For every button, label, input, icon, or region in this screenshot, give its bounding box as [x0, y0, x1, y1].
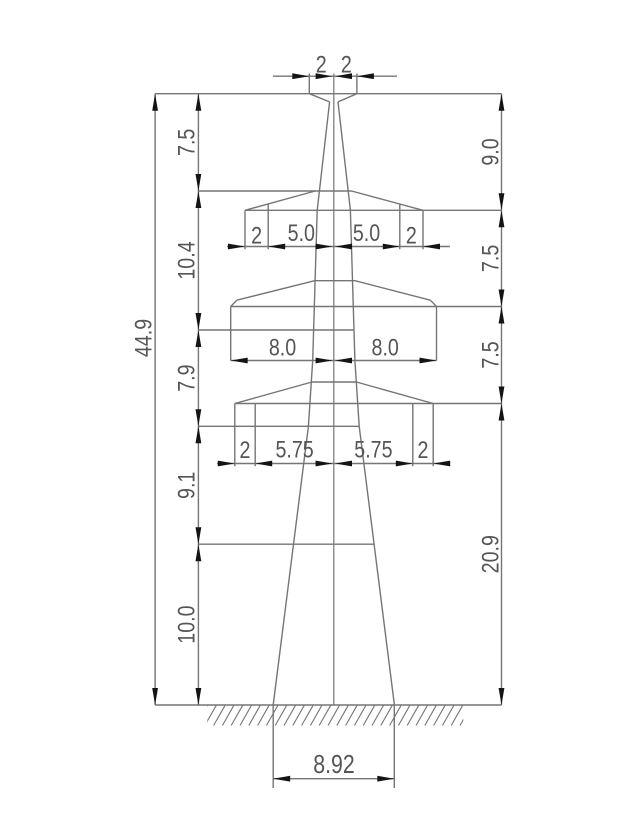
- svg-text:9.1: 9.1: [173, 472, 200, 499]
- svg-text:10.4: 10.4: [173, 241, 200, 279]
- svg-text:5.75: 5.75: [275, 436, 313, 463]
- svg-text:2: 2: [251, 222, 262, 249]
- svg-text:2: 2: [406, 222, 417, 249]
- svg-text:9.0: 9.0: [477, 138, 504, 165]
- svg-text:5.0: 5.0: [353, 219, 380, 246]
- svg-text:8.0: 8.0: [372, 334, 399, 361]
- svg-text:7.5: 7.5: [477, 245, 504, 272]
- svg-text:2: 2: [316, 51, 327, 78]
- svg-text:20.9: 20.9: [477, 535, 504, 573]
- svg-text:44.9: 44.9: [130, 319, 157, 357]
- svg-text:10.0: 10.0: [173, 605, 200, 643]
- svg-text:7.9: 7.9: [173, 364, 200, 391]
- svg-text:2: 2: [418, 436, 429, 463]
- svg-text:7.5: 7.5: [173, 129, 200, 156]
- svg-text:5.0: 5.0: [288, 219, 315, 246]
- svg-text:2: 2: [240, 436, 251, 463]
- svg-text:2: 2: [341, 51, 352, 78]
- svg-text:7.5: 7.5: [477, 341, 504, 368]
- svg-text:8.92: 8.92: [313, 750, 354, 780]
- svg-text:8.0: 8.0: [269, 334, 296, 361]
- svg-text:5.75: 5.75: [354, 436, 392, 463]
